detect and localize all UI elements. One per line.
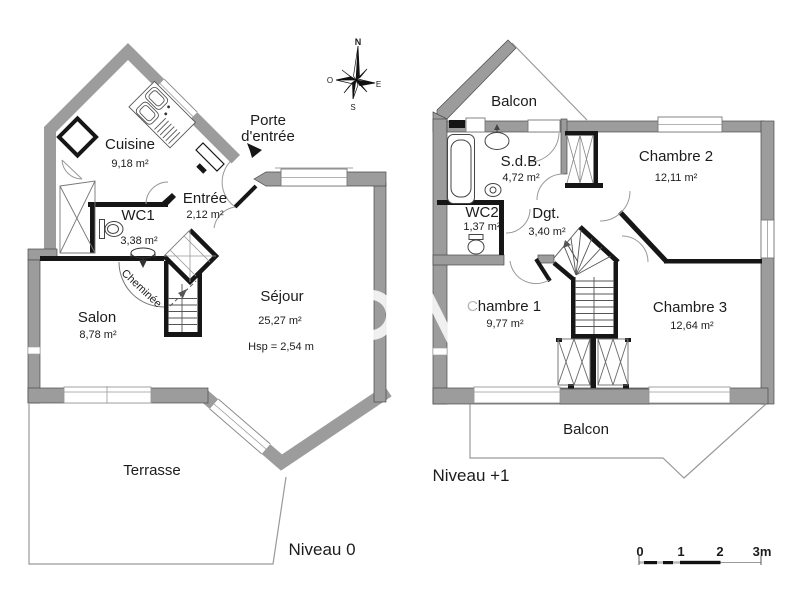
svg-text:Balcon: Balcon (491, 93, 537, 110)
svg-text:25,27 m²: 25,27 m² (258, 315, 302, 327)
svg-text:3,38 m²: 3,38 m² (120, 235, 158, 247)
svg-text:Hsp = 2,54 m: Hsp = 2,54 m (248, 341, 314, 353)
svg-text:Séjour: Séjour (260, 288, 303, 305)
svg-text:Salon: Salon (78, 309, 116, 326)
svg-text:E: E (376, 80, 381, 89)
svg-text:12,11 m²: 12,11 m² (655, 172, 698, 184)
svg-text:Terrasse: Terrasse (123, 462, 181, 479)
svg-text:Chambre 2: Chambre 2 (639, 148, 713, 165)
svg-text:Niveau +1: Niveau +1 (432, 466, 509, 485)
svg-text:2: 2 (716, 544, 723, 559)
svg-text:WC2: WC2 (465, 204, 498, 221)
svg-text:0: 0 (636, 544, 643, 559)
svg-text:Entrée: Entrée (183, 190, 227, 207)
svg-text:9,18 m²: 9,18 m² (111, 158, 149, 170)
svg-text:S: S (350, 103, 355, 112)
svg-text:9,77 m²: 9,77 m² (486, 318, 524, 330)
svg-text:2,12 m²: 2,12 m² (186, 209, 224, 221)
svg-text:Dgt.: Dgt. (532, 205, 560, 222)
svg-text:N: N (355, 37, 362, 47)
svg-text:S.d.B.: S.d.B. (501, 153, 542, 170)
svg-text:3m: 3m (753, 544, 772, 559)
svg-text:4,72 m²: 4,72 m² (502, 172, 540, 184)
svg-text:Chambre 1: Chambre 1 (467, 298, 541, 315)
svg-text:WC1: WC1 (121, 207, 154, 224)
svg-text:1,37 m²: 1,37 m² (463, 221, 501, 233)
svg-text:d'entrée: d'entrée (241, 128, 295, 145)
svg-text:3,40 m²: 3,40 m² (528, 226, 566, 238)
svg-text:O: O (327, 76, 333, 85)
svg-text:Balcon: Balcon (563, 421, 609, 438)
svg-text:1: 1 (677, 544, 684, 559)
svg-text:Porte: Porte (250, 112, 286, 129)
svg-text:Cuisine: Cuisine (105, 136, 155, 153)
svg-text:Niveau 0: Niveau 0 (288, 540, 355, 559)
svg-text:Chambre 3: Chambre 3 (653, 299, 727, 316)
svg-text:12,64 m²: 12,64 m² (670, 320, 714, 332)
svg-text:8,78 m²: 8,78 m² (79, 329, 117, 341)
